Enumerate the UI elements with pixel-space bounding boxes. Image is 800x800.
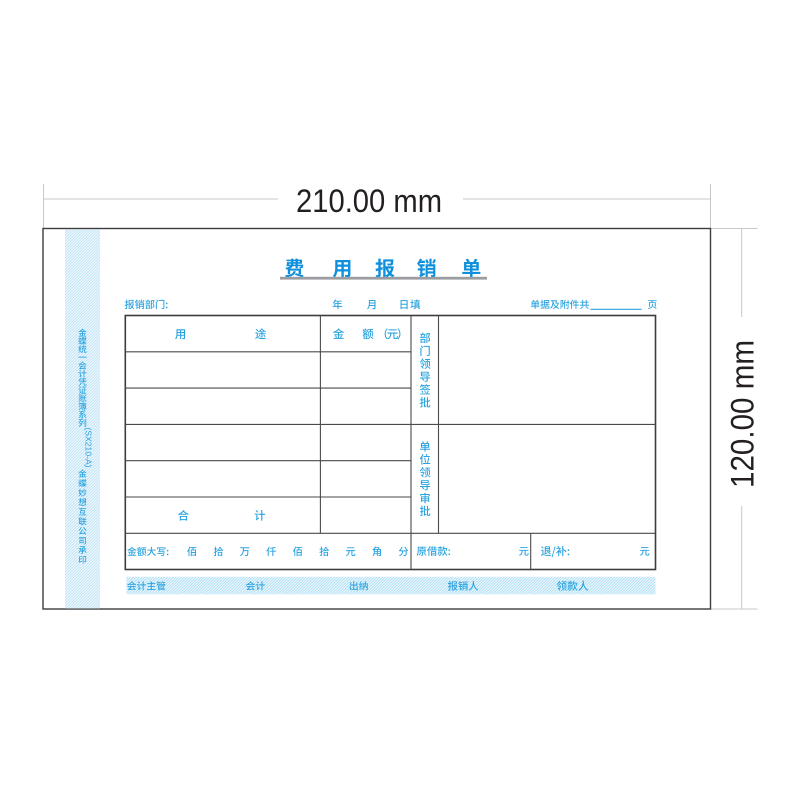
svg-text:210.00 mm: 210.00 mm xyxy=(296,183,442,219)
svg-text:(SX210-A): (SX210-A) xyxy=(84,428,93,468)
svg-text:120.00 mm: 120.00 mm xyxy=(725,340,761,488)
